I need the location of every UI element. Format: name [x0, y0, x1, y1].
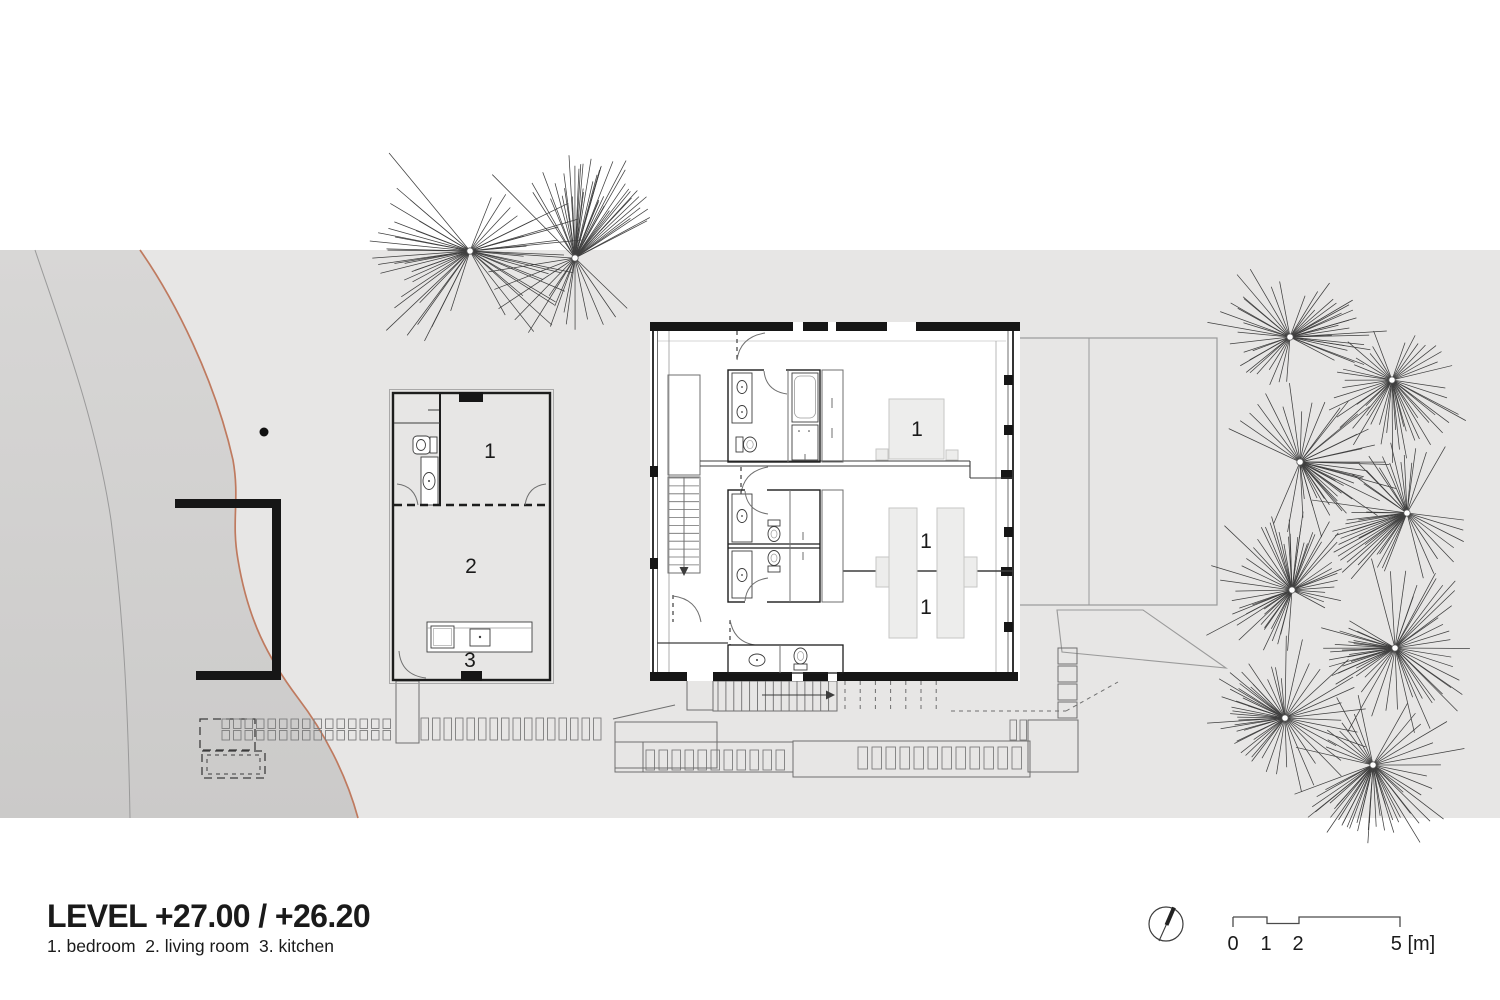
bed-bottom [937, 508, 964, 638]
toilet [736, 437, 757, 452]
room-label-bedroom-top: 1 [911, 418, 923, 441]
tree-frond [389, 153, 470, 251]
floor-plan-drawing: 1 2 3 [0, 0, 1500, 1000]
north-indicator [1149, 907, 1183, 941]
toilet-lower [768, 551, 780, 573]
room-label-bedroom-bottom: 1 [920, 596, 932, 619]
scale-bar: 0 1 2 5 [m] [1227, 917, 1435, 955]
title-block: LEVEL +27.00 / +26.20 1. bedroom 2. livi… [47, 898, 370, 956]
main-house: 1 1 1 [650, 322, 1020, 681]
tree-trunk [1370, 762, 1376, 768]
tree-trunk [1389, 377, 1395, 383]
tree-trunk [1404, 510, 1410, 516]
mullion [650, 466, 658, 477]
tree-trunk [1282, 715, 1288, 721]
tree-trunk [1392, 645, 1398, 651]
tree-trunk [1289, 587, 1295, 593]
tree-frond [492, 175, 575, 258]
mullion [650, 558, 658, 569]
kitchen-sink [431, 626, 454, 648]
toilet [794, 648, 807, 670]
bathtub [792, 373, 818, 422]
mullion [1004, 622, 1013, 632]
nightstand [964, 557, 977, 587]
tree-frond [575, 164, 581, 258]
tree-frond [575, 197, 639, 258]
nightstand [946, 450, 958, 460]
door-opening [764, 369, 786, 372]
door-opening-upper [745, 489, 767, 492]
room-label-kitchen: 3 [464, 649, 476, 672]
nightstand [876, 449, 888, 460]
door-opening-lower [745, 601, 767, 604]
room-legend: 1. bedroom 2. living room 3. kitchen [47, 936, 334, 956]
shore-wall-top [175, 499, 281, 508]
scale-tick-0: 0 [1227, 933, 1238, 955]
tree-trunk [467, 248, 473, 254]
floor-plan-canvas: 1 2 3 [0, 0, 1500, 1000]
room-label-bedroom: 1 [484, 440, 496, 463]
tree-frond [470, 208, 510, 251]
survey-dot [260, 428, 269, 437]
page-title: LEVEL +27.00 / +26.20 [47, 898, 370, 934]
scale-tick-1: 1 [1260, 933, 1271, 955]
tree-trunk [572, 255, 578, 261]
bed-mid [889, 508, 917, 638]
tree-frond [388, 228, 470, 251]
room-label-living: 2 [465, 555, 477, 578]
kitchen-counter [427, 622, 532, 652]
toilet-upper [768, 520, 780, 542]
sink [421, 457, 438, 505]
scale-tick-5: 5 [m] [1391, 933, 1435, 955]
mullion [1004, 375, 1013, 385]
threshold-top [459, 392, 483, 402]
mullion [1004, 425, 1013, 435]
tree-trunk [1287, 334, 1293, 340]
scale-tick-2: 2 [1292, 933, 1303, 955]
nightstand [876, 557, 889, 587]
toilet [413, 436, 437, 454]
tree-frond [575, 197, 647, 258]
tree-frond [532, 183, 575, 258]
mullion [1004, 527, 1013, 537]
room-label-bedroom-mid: 1 [920, 530, 932, 553]
scale-bar-shape [1233, 917, 1400, 927]
tree-trunk [1297, 459, 1303, 465]
threshold-bottom [461, 671, 482, 681]
tree-frond [410, 200, 470, 251]
shore-wall-bottom [196, 671, 281, 680]
shore-wall-right [272, 499, 281, 680]
north-needle-head [1167, 908, 1175, 926]
